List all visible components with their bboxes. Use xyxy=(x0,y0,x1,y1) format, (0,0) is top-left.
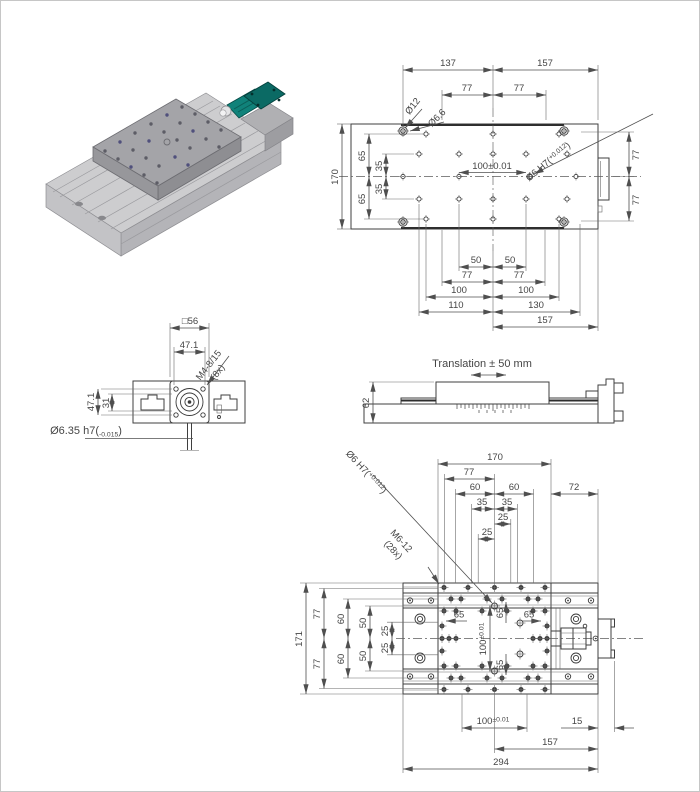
bottom-dim-25u: 25 xyxy=(498,512,509,523)
bottom-dim-35r: 35 xyxy=(502,497,513,508)
top-dim-65u: 65 xyxy=(357,151,368,162)
front-dim-31: 31 xyxy=(101,398,112,409)
top-dim-110: 110 xyxy=(448,300,463,311)
bottom-dim-50t: 50 xyxy=(358,618,369,629)
top-dim-77br: 77 xyxy=(514,270,525,281)
side-view-dimensions: 62 xyxy=(361,382,434,423)
top-view-dimensions: 137 157 77 77 Ø12 Ø6.6 Ø6 H7(+0.012) 170… xyxy=(330,58,653,331)
bottom-dim-77: 77 xyxy=(464,467,475,478)
top-dim-170: 170 xyxy=(330,169,341,185)
bottom-view-dimensions: 170 77 60 60 35 35 25 25 72 Ø6 H7(+0.012… xyxy=(294,449,634,773)
top-dim-77r1: 77 xyxy=(631,150,642,161)
drawing-sheet: 137 157 77 77 Ø12 Ø6.6 Ø6 H7(+0.012) 170… xyxy=(0,0,700,792)
front-dim-471-top: 47.1 xyxy=(180,340,199,351)
isometric-view xyxy=(46,82,293,256)
top-view-body xyxy=(339,108,641,251)
bottom-dim-25t: 25 xyxy=(380,626,391,637)
bottom-dim-77t: 77 xyxy=(312,609,323,620)
iso-slot-hole xyxy=(98,216,106,220)
iso-slot-hole xyxy=(75,202,83,206)
top-dim-157b: 157 xyxy=(537,315,553,326)
top-label-d12: Ø12 xyxy=(403,96,423,117)
bottom-dim-60b: 60 xyxy=(336,654,347,665)
top-label-d66: Ø6.6 xyxy=(426,107,448,129)
bottom-dim-72: 72 xyxy=(569,482,580,493)
bottom-dim-65w: 65 xyxy=(454,610,465,621)
top-view: 137 157 77 77 Ø12 Ø6.6 Ø6 H7(+0.012) 170… xyxy=(330,58,653,331)
front-dim-471-left: 47.1 xyxy=(86,393,97,412)
bottom-dim-171: 171 xyxy=(294,631,305,647)
side-title: Translation ± 50 mm xyxy=(432,358,532,370)
bottom-dim-65s: 65 xyxy=(495,660,506,671)
bottom-dim-100v: 100±0.01 xyxy=(478,622,489,655)
bottom-dim-15: 15 xyxy=(572,716,583,727)
bottom-dim-25b: 25 xyxy=(380,643,391,654)
top-dim-100: 100±0.01 xyxy=(472,161,512,172)
bottom-dim-77b: 77 xyxy=(312,659,323,670)
top-dim-50r: 50 xyxy=(505,255,516,266)
technical-drawing: 137 157 77 77 Ø12 Ø6.6 Ø6 H7(+0.012) 170… xyxy=(1,1,700,792)
top-dim-137: 137 xyxy=(440,58,456,69)
bottom-view-body xyxy=(396,583,646,694)
front-view: □56 47.1 M4-8/15 (8x) 47.1 31 Ø6.35 h7(-… xyxy=(50,316,245,451)
side-view-scale-ticks xyxy=(457,404,529,413)
top-dim-157: 157 xyxy=(537,58,553,69)
front-label-shaft: Ø6.35 h7(-0.015) xyxy=(50,425,122,438)
front-view-dimensions: □56 47.1 M4-8/15 (8x) 47.1 31 Ø6.35 h7(-… xyxy=(50,316,229,439)
bottom-dim-60l: 60 xyxy=(470,482,481,493)
top-dim-50l: 50 xyxy=(471,255,482,266)
side-view-body xyxy=(364,379,623,423)
top-dim-77bl: 77 xyxy=(462,270,473,281)
side-dim-62: 62 xyxy=(361,398,372,409)
top-dim-35l: 35 xyxy=(374,184,385,195)
top-dim-77a: 77 xyxy=(462,83,473,94)
bottom-dim-65e: 65 xyxy=(524,610,535,621)
top-dim-100l: 100 xyxy=(451,285,467,296)
bottom-view: 170 77 60 60 35 35 25 25 72 Ø6 H7(+0.012… xyxy=(294,449,646,773)
bottom-dim-170: 170 xyxy=(487,452,503,463)
bottom-dim-294: 294 xyxy=(493,757,509,768)
bottom-dim-25lo: 25 xyxy=(482,527,493,538)
top-dim-77b: 77 xyxy=(514,83,525,94)
bottom-label-fit: Ø6 H7(+0.012) xyxy=(343,449,388,497)
front-view-body xyxy=(133,381,245,451)
front-dim-sq56: □56 xyxy=(182,316,198,327)
bottom-dim-35l: 35 xyxy=(477,497,488,508)
top-dim-130: 130 xyxy=(528,300,544,311)
top-dim-77r2: 77 xyxy=(631,195,642,206)
side-view: Translation ± 50 mm 62 xyxy=(361,358,623,423)
bottom-dim-50b: 50 xyxy=(358,651,369,662)
top-dim-35u: 35 xyxy=(374,161,385,172)
top-label-fit: Ø6 H7(+0.012) xyxy=(524,140,573,184)
top-dim-65l: 65 xyxy=(357,194,368,205)
bottom-dim-60t: 60 xyxy=(336,614,347,625)
bottom-dim-157: 157 xyxy=(542,737,558,748)
bottom-dim-60r: 60 xyxy=(509,482,520,493)
bottom-dim-65n: 65 xyxy=(495,608,506,619)
bottom-dim-100b: 100±0.01 xyxy=(477,716,510,727)
top-dim-100r: 100 xyxy=(518,285,534,296)
